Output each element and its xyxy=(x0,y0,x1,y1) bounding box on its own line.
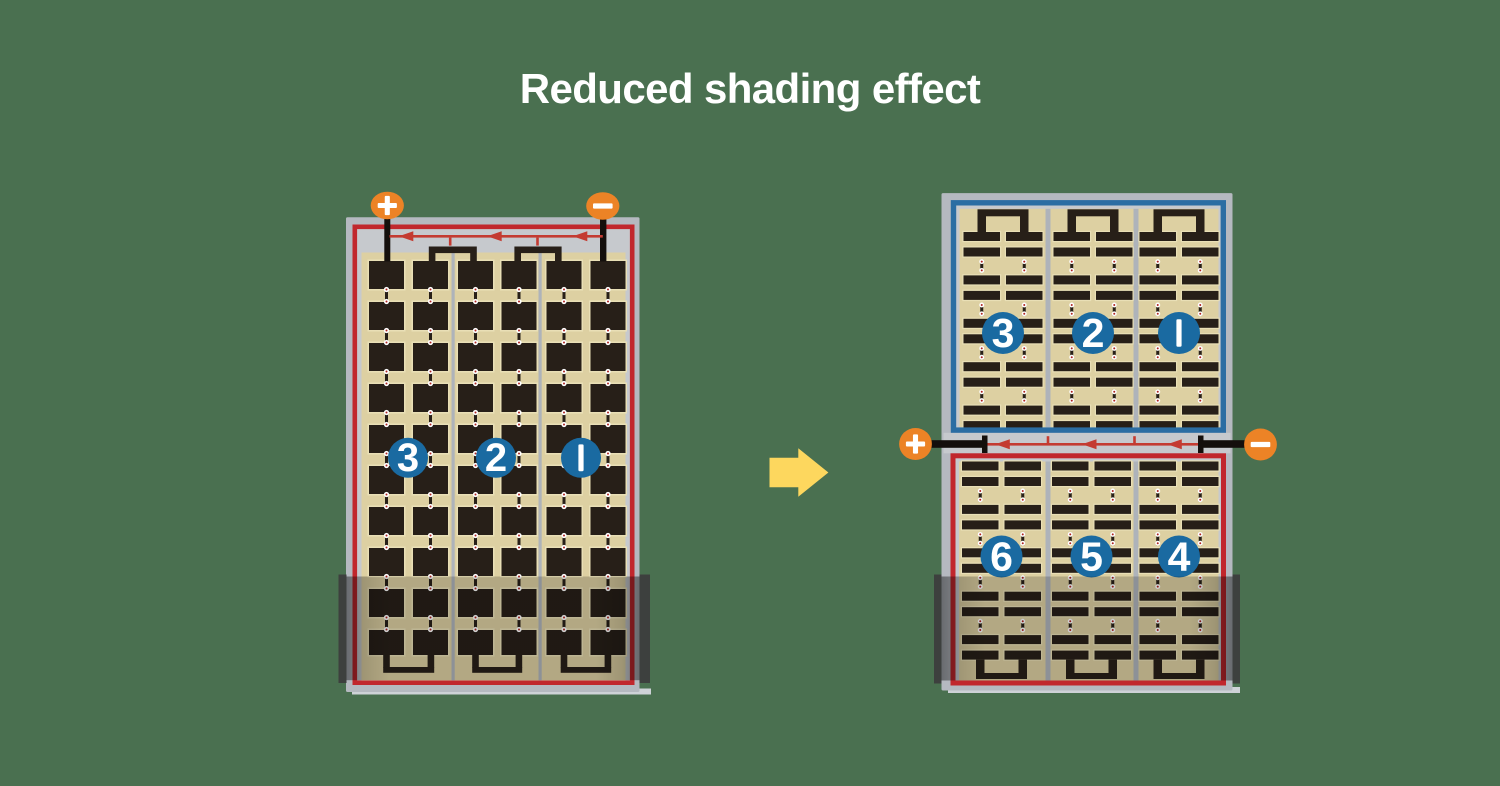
svg-text:2: 2 xyxy=(1082,310,1105,356)
svg-text:4: 4 xyxy=(1168,534,1191,580)
svg-text:2: 2 xyxy=(485,436,507,480)
svg-text:Reduced shading effect: Reduced shading effect xyxy=(520,65,981,112)
svg-text:5: 5 xyxy=(1080,534,1103,580)
svg-text:6: 6 xyxy=(990,534,1013,580)
svg-text:3: 3 xyxy=(397,436,419,480)
svg-text:3: 3 xyxy=(992,310,1015,356)
